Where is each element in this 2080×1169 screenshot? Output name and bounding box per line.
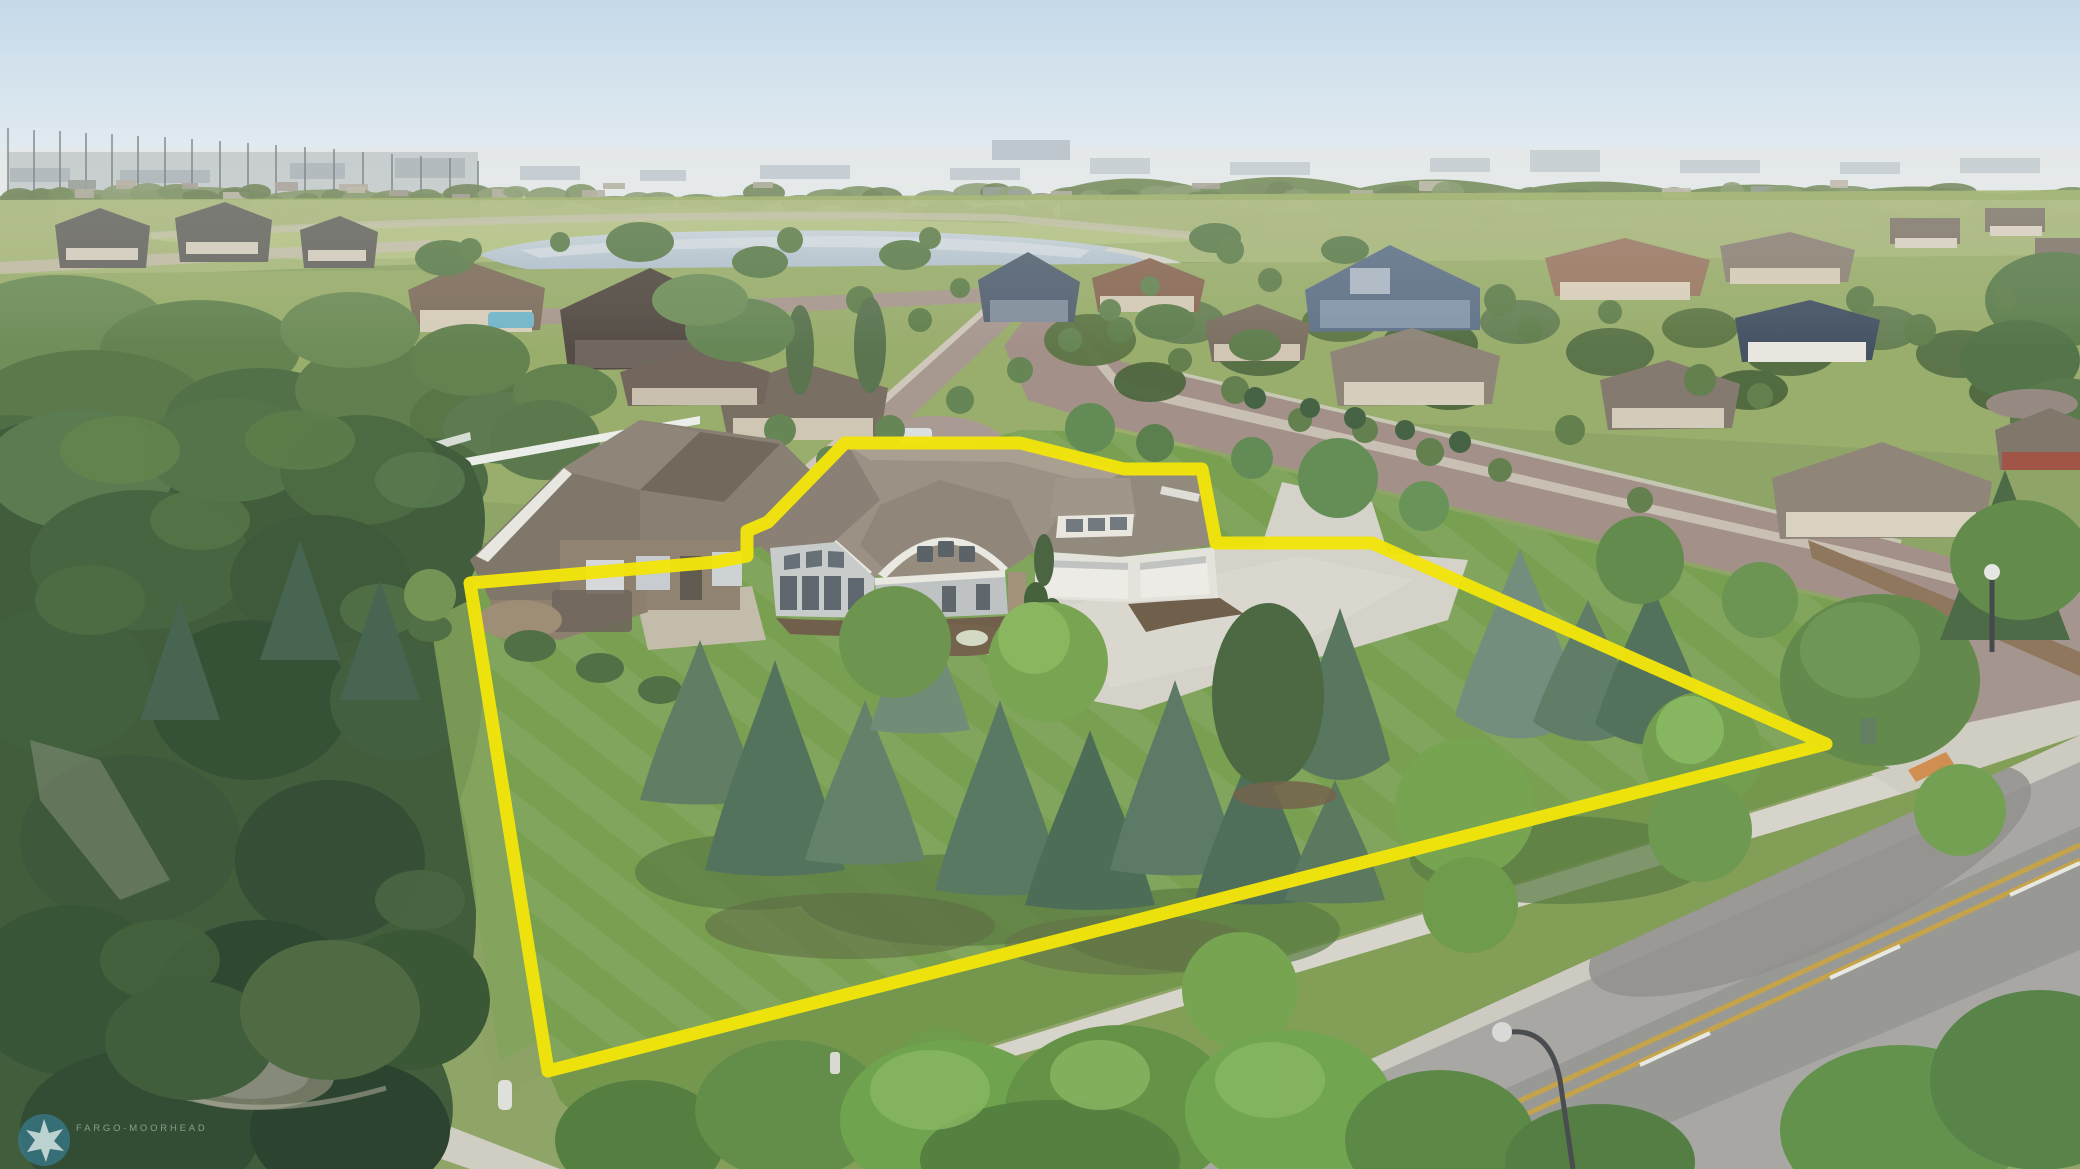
svg-text:FARGO-MOORHEAD: FARGO-MOORHEAD <box>76 1123 208 1134</box>
